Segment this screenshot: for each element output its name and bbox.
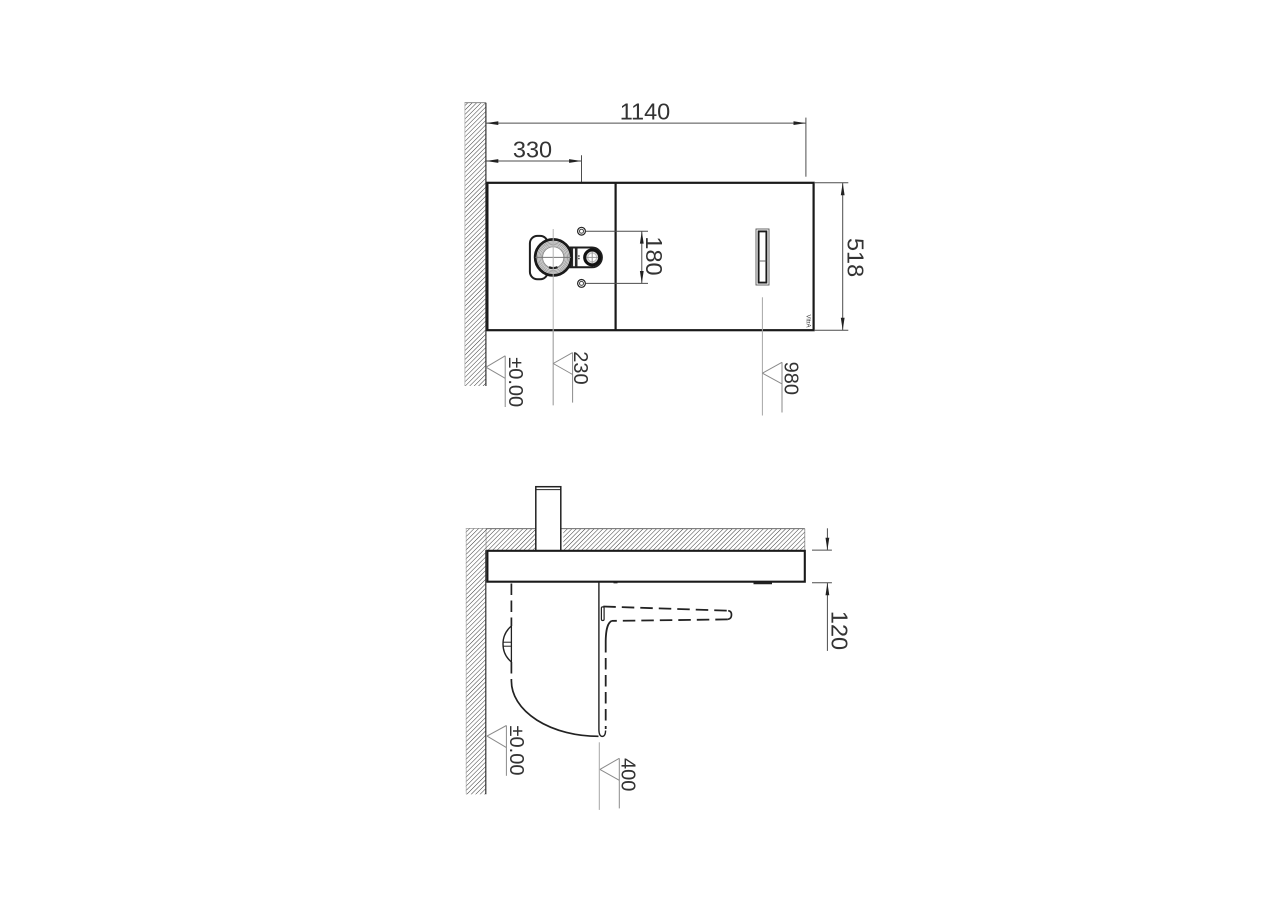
svg-text:180: 180	[641, 236, 667, 275]
svg-text:400: 400	[616, 758, 638, 791]
svg-text:230: 230	[569, 351, 591, 384]
svg-text:±0.00: ±0.00	[504, 357, 526, 407]
svg-text:±0.00: ±0.00	[505, 726, 527, 776]
svg-text:VitrA: VitrA	[805, 315, 811, 328]
svg-text:518: 518	[843, 238, 869, 277]
svg-text:980: 980	[779, 362, 801, 395]
svg-text:120: 120	[827, 611, 853, 650]
svg-text:330: 330	[513, 136, 552, 162]
svg-text:1140: 1140	[620, 98, 671, 124]
